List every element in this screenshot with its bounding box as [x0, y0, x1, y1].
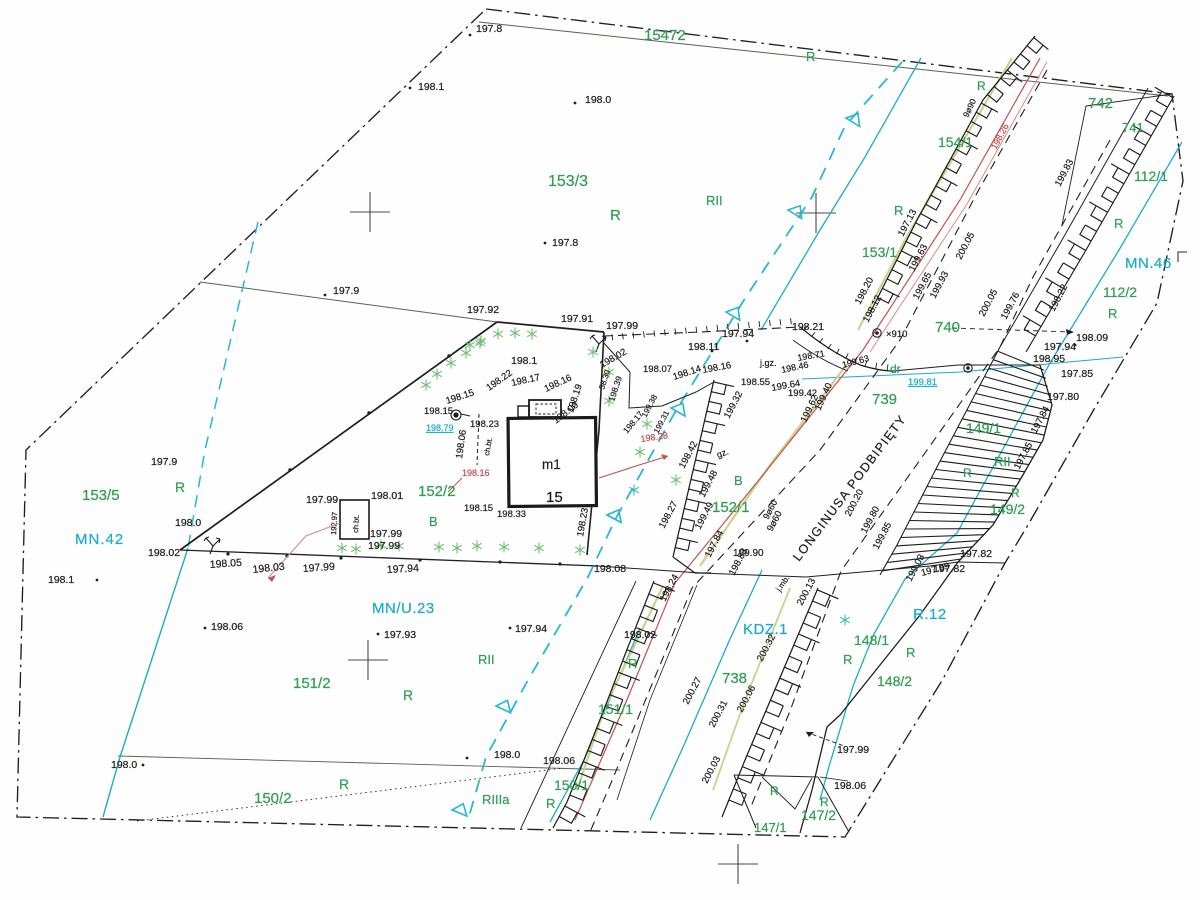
svg-text:152/1: 152/1 — [712, 499, 750, 516]
svg-text:147/1: 147/1 — [754, 820, 787, 835]
svg-text:198.02: 198.02 — [624, 629, 656, 641]
svg-text:199.90: 199.90 — [733, 548, 764, 559]
svg-text:R: R — [977, 79, 986, 93]
svg-text:198.0: 198.0 — [585, 94, 611, 106]
svg-text:198.01: 198.01 — [371, 490, 403, 502]
svg-text:R: R — [339, 776, 349, 792]
svg-text:198.23: 198.23 — [470, 419, 499, 430]
svg-text:MN/U.23: MN/U.23 — [372, 600, 435, 617]
svg-text:197.8: 197.8 — [552, 237, 578, 249]
svg-text:198.1: 198.1 — [418, 81, 444, 93]
svg-text:RII: RII — [994, 454, 1011, 469]
svg-text:MN.42: MN.42 — [75, 531, 124, 548]
svg-text:198.55: 198.55 — [741, 377, 770, 388]
svg-text:198.15: 198.15 — [464, 503, 493, 514]
svg-text:742: 742 — [1088, 95, 1113, 112]
svg-text:738: 738 — [722, 670, 747, 687]
svg-text:198.1: 198.1 — [511, 355, 537, 367]
svg-text:741: 741 — [1122, 120, 1144, 135]
svg-text:153/3: 153/3 — [548, 173, 588, 190]
svg-text:197.94: 197.94 — [1044, 341, 1076, 353]
svg-text:197.99: 197.99 — [302, 561, 335, 575]
svg-text:150/1: 150/1 — [554, 777, 589, 793]
svg-text:RIIIa: RIIIa — [482, 792, 510, 807]
svg-text:R: R — [963, 466, 972, 480]
svg-text:112/1: 112/1 — [1134, 168, 1168, 184]
svg-text:R: R — [1011, 486, 1020, 500]
svg-text:B: B — [429, 514, 438, 529]
svg-text:198.0: 198.0 — [111, 759, 137, 771]
svg-text:151/1: 151/1 — [598, 701, 633, 717]
svg-text:197.80: 197.80 — [1047, 391, 1079, 403]
svg-text:198.16: 198.16 — [462, 468, 490, 478]
svg-text:153/1: 153/1 — [862, 244, 897, 260]
svg-text:198.05: 198.05 — [209, 557, 242, 571]
svg-text:199.81: 199.81 — [908, 377, 937, 388]
svg-text:RII: RII — [706, 193, 723, 208]
svg-text:197.82: 197.82 — [960, 548, 992, 560]
svg-text:R: R — [1108, 306, 1117, 321]
svg-text:739: 739 — [872, 391, 897, 408]
svg-text:198.21: 198.21 — [792, 321, 824, 333]
svg-text:KDZ.1: KDZ.1 — [743, 621, 788, 638]
svg-text:112/2: 112/2 — [1103, 284, 1137, 300]
svg-text:197.99: 197.99 — [368, 540, 400, 552]
svg-text:R: R — [806, 49, 815, 64]
svg-text:ch.bt.: ch.bt. — [351, 514, 361, 533]
svg-text:198.09: 198.09 — [1076, 332, 1108, 344]
svg-text:198.11: 198.11 — [688, 341, 719, 353]
svg-text:153/5: 153/5 — [82, 487, 120, 504]
svg-text:15472: 15472 — [644, 27, 686, 44]
svg-text:152/2: 152/2 — [418, 483, 456, 500]
svg-text:m1: m1 — [542, 457, 561, 472]
svg-text:j.gz.: j.gz. — [759, 358, 777, 368]
svg-text:149/1: 149/1 — [966, 420, 1001, 436]
svg-text:R: R — [1114, 216, 1123, 231]
svg-text:MN.46: MN.46 — [1125, 255, 1172, 272]
svg-text:R: R — [628, 656, 637, 671]
svg-text:15: 15 — [546, 489, 563, 506]
svg-text:RII: RII — [478, 652, 495, 667]
svg-text:150/2: 150/2 — [254, 790, 292, 807]
svg-text:R.12: R.12 — [913, 606, 947, 623]
svg-text:197.9: 197.9 — [151, 456, 177, 468]
svg-text:149/2: 149/2 — [990, 501, 1025, 517]
svg-text:197.85: 197.85 — [1061, 368, 1093, 380]
svg-text:R: R — [403, 687, 413, 703]
svg-text:R: R — [610, 207, 621, 224]
svg-text:×910: ×910 — [886, 329, 907, 340]
svg-text:198.0: 198.0 — [494, 749, 520, 761]
svg-text:151/2: 151/2 — [293, 675, 331, 692]
svg-text:198.06: 198.06 — [834, 780, 866, 792]
svg-text:197.94: 197.94 — [515, 623, 547, 635]
svg-text:148/2: 148/2 — [877, 673, 912, 689]
svg-text:154/1: 154/1 — [938, 134, 973, 150]
svg-text:197.92: 197.92 — [467, 304, 499, 316]
svg-text:197.94: 197.94 — [387, 562, 420, 576]
svg-text:198.33: 198.33 — [497, 509, 526, 520]
svg-text:147/2: 147/2 — [801, 807, 836, 823]
svg-text:R: R — [894, 203, 903, 218]
svg-text:R: R — [820, 795, 829, 809]
svg-text:198.06: 198.06 — [211, 621, 243, 633]
svg-text:148/1: 148/1 — [854, 632, 889, 648]
svg-text:198.15: 198.15 — [424, 406, 453, 417]
svg-text:197.99: 197.99 — [370, 528, 402, 540]
svg-text:198.1: 198.1 — [48, 574, 74, 586]
svg-text:197.91: 197.91 — [561, 313, 593, 325]
svg-text:R: R — [843, 652, 852, 667]
svg-text:198.79: 198.79 — [426, 423, 454, 433]
svg-text:197.99: 197.99 — [306, 494, 338, 506]
svg-text:dr: dr — [890, 362, 901, 376]
svg-text:197.99: 197.99 — [606, 320, 638, 332]
svg-text:R: R — [770, 784, 779, 798]
svg-text:197.99: 197.99 — [837, 744, 869, 756]
svg-text:198.08: 198.08 — [594, 563, 626, 575]
svg-text:197.9: 197.9 — [333, 285, 359, 297]
svg-text:740: 740 — [935, 319, 960, 336]
svg-text:B: B — [734, 473, 743, 488]
svg-text:R: R — [906, 645, 915, 660]
svg-text:R: R — [175, 479, 185, 495]
svg-text:R: R — [546, 796, 555, 811]
svg-text:197.93: 197.93 — [384, 629, 416, 641]
svg-text:198.95: 198.95 — [1033, 353, 1065, 365]
svg-text:197.8: 197.8 — [476, 23, 502, 35]
svg-text:198.0: 198.0 — [175, 517, 201, 529]
svg-text:198.06: 198.06 — [543, 755, 575, 767]
svg-text:197.94: 197.94 — [722, 328, 754, 340]
svg-text:198.07: 198.07 — [643, 364, 672, 375]
svg-text:198.02: 198.02 — [148, 547, 180, 559]
